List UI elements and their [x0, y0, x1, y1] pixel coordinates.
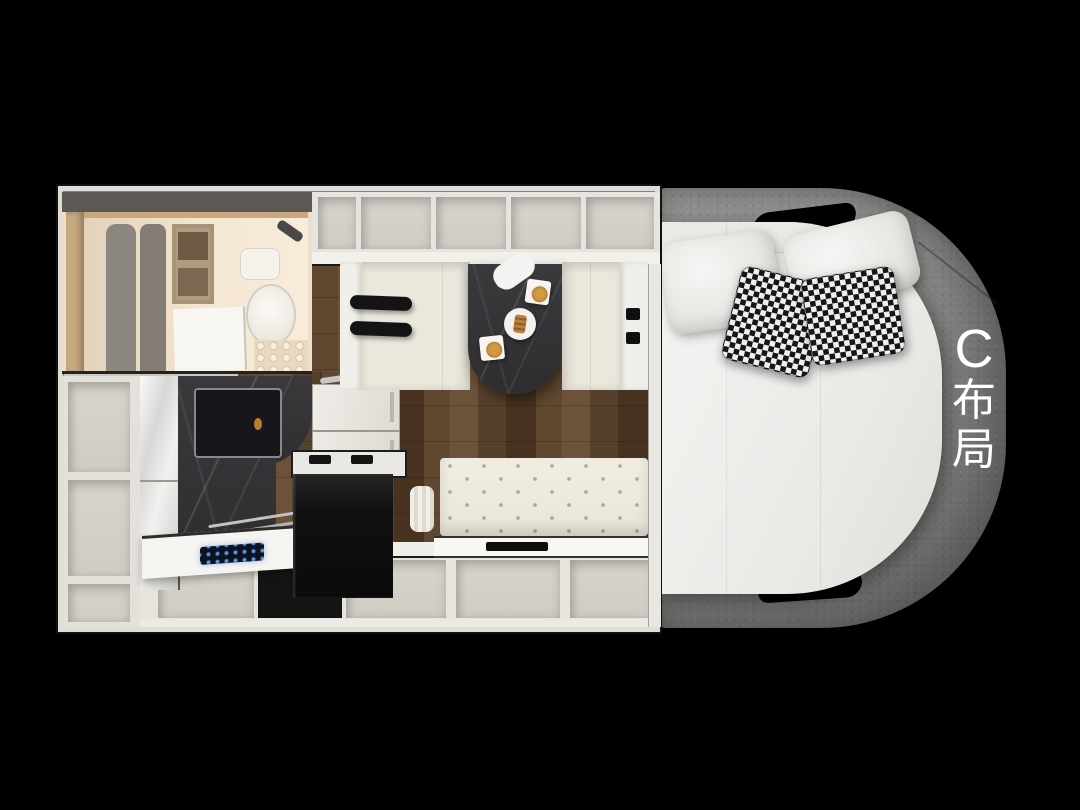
- seat-inset-tray: [486, 542, 548, 551]
- bench-strap: [350, 321, 412, 337]
- storage-cubby: [511, 197, 581, 249]
- bathroom: [62, 192, 312, 374]
- shower-hex-tiles: [254, 340, 308, 371]
- layout-label-char: 局: [952, 425, 996, 474]
- appliance-handle: [351, 455, 373, 464]
- storage-cubby: [318, 197, 356, 249]
- oven-appliance: [293, 474, 393, 598]
- control-panel-display: [200, 542, 264, 564]
- bench-strap: [350, 295, 412, 311]
- bench-cushion: [562, 262, 620, 390]
- bathroom-shelf-unit: [172, 224, 214, 304]
- toilet: [246, 284, 296, 346]
- cushion-seam: [442, 262, 443, 390]
- layout-label-char: C: [955, 322, 994, 376]
- storage-cubby: [68, 382, 130, 472]
- layout-label: C 布 局: [932, 322, 1016, 502]
- wardrobe-handle: [626, 308, 640, 320]
- layout-label-char: 布: [952, 376, 996, 425]
- bathroom-partition-panel: [106, 224, 136, 371]
- shelf-cavity: [178, 268, 208, 296]
- coffee-cup: [483, 339, 505, 361]
- dinette-bench-right: [562, 262, 648, 390]
- toilet-cistern: [240, 248, 280, 280]
- fridge-door-split: [140, 480, 178, 482]
- kitchen-sink-basin: [194, 388, 282, 458]
- pastry-plate: [504, 308, 536, 340]
- dinette-table: [468, 264, 562, 394]
- storage-cubby: [456, 560, 560, 618]
- cabinet-door-split: [312, 430, 400, 432]
- storage-cubby: [68, 584, 130, 622]
- cabinet-handle: [390, 392, 394, 422]
- sink-drain-accent: [254, 418, 262, 430]
- cushion-seam: [590, 262, 591, 390]
- overhead-cabinet-row: [312, 192, 660, 252]
- wardrobe-handle: [626, 332, 640, 344]
- cabin-module: [58, 186, 660, 632]
- bench-backrest: [620, 262, 648, 390]
- rv-floorplan-scene: C 布 局: [0, 0, 1080, 810]
- cabin-right-wall: [648, 264, 661, 627]
- sofa-seat-counter: [434, 536, 654, 558]
- sofa-column-leg: [410, 486, 434, 532]
- shower-screen: [173, 307, 247, 372]
- shelf-cavity: [178, 232, 208, 260]
- storage-cubby: [436, 197, 506, 249]
- bottom-cabinet-base: [140, 619, 660, 627]
- bathroom-side-light-strip: [66, 212, 84, 374]
- coffee-saucer: [524, 278, 551, 305]
- bathroom-wall-band: [62, 192, 312, 212]
- tufted-sofa-backrest: [440, 458, 648, 536]
- bed-module: C 布 局: [656, 188, 1006, 628]
- storage-cubby: [570, 560, 654, 618]
- pastry: [513, 314, 527, 333]
- dinette-bench-left: [340, 262, 470, 390]
- appliance-handle: [309, 455, 331, 464]
- storage-cubby: [586, 197, 654, 249]
- houndstooth-pillow-right: [800, 265, 907, 367]
- bathroom-partition-panel: [140, 224, 166, 371]
- storage-cubby: [68, 480, 130, 576]
- coffee-cup: [528, 283, 551, 306]
- coffee-saucer: [479, 335, 505, 361]
- storage-cubby: [361, 197, 431, 249]
- left-shelf-column: [62, 376, 140, 627]
- bathroom-wall-edge: [62, 371, 312, 374]
